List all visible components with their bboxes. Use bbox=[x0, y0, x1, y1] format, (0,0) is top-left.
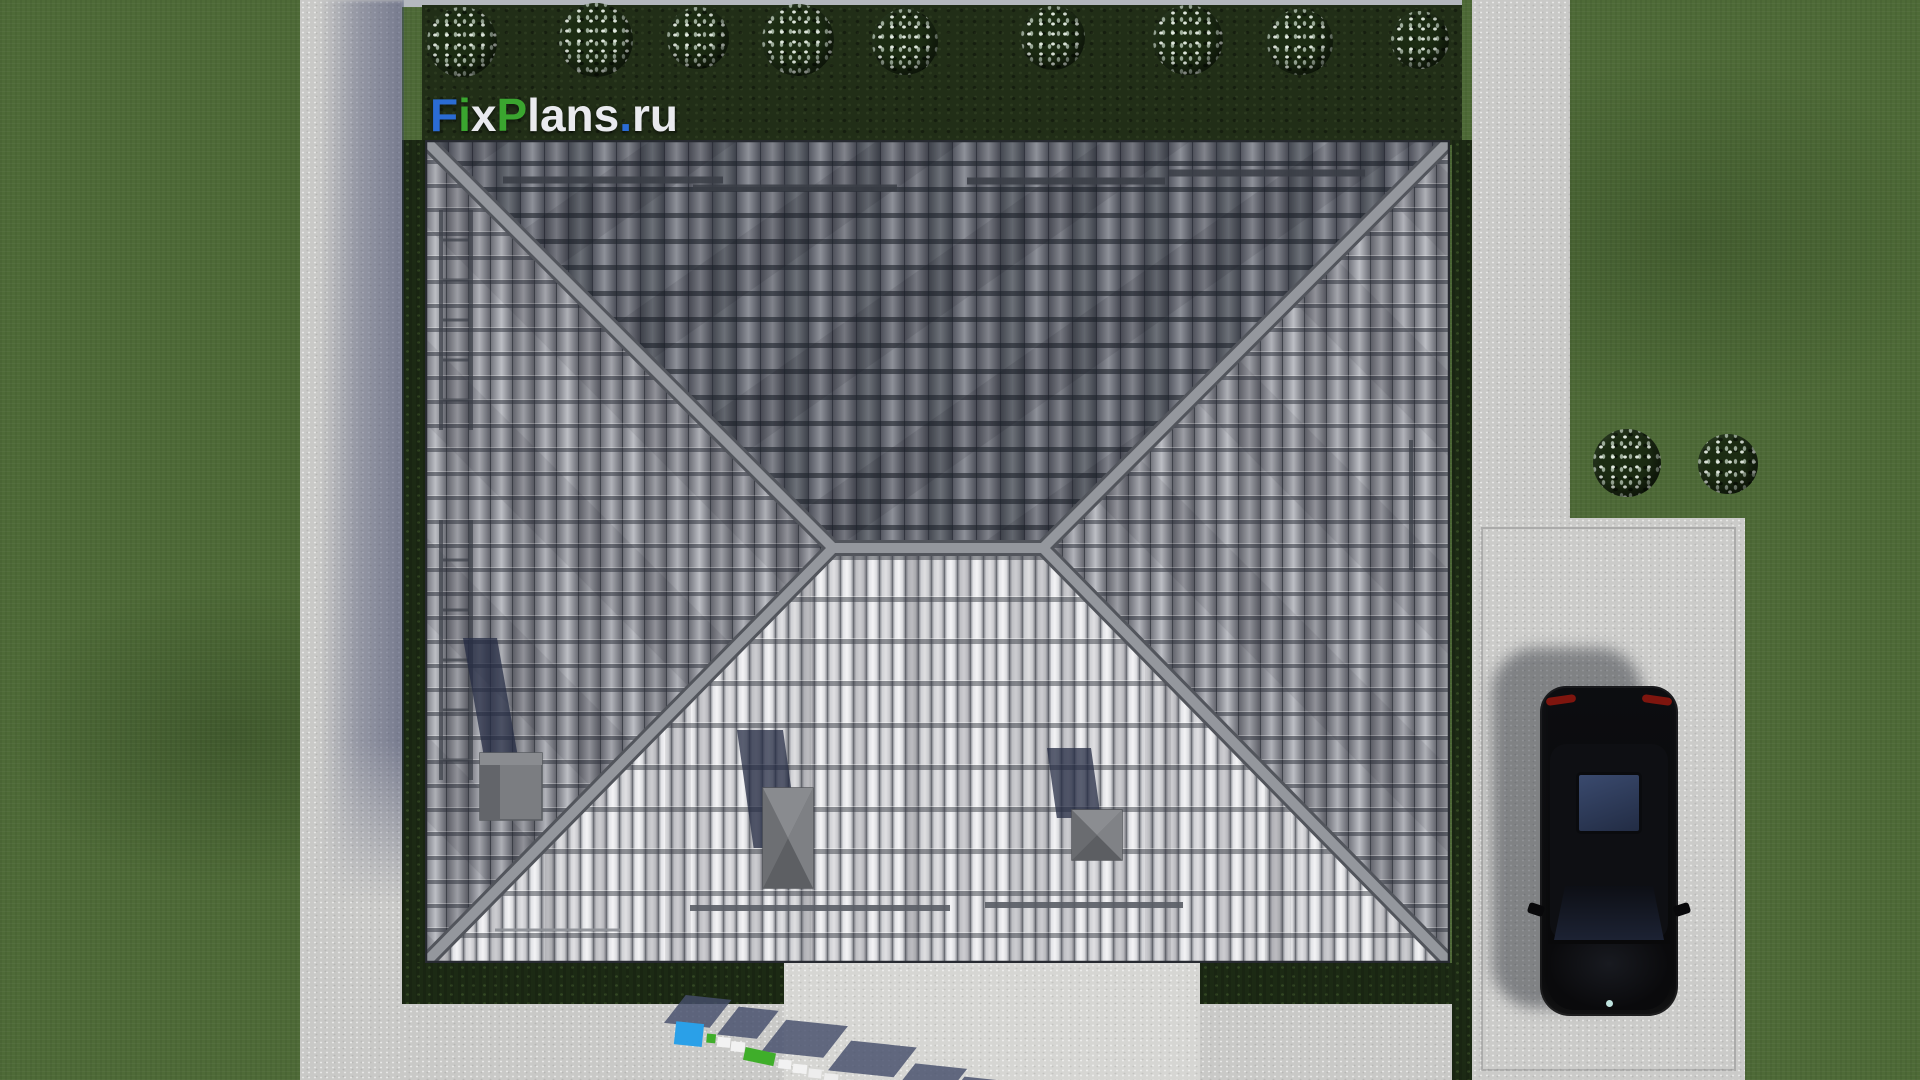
watermark-cap-white bbox=[730, 1041, 745, 1052]
watermark-letter-shadow bbox=[762, 1020, 848, 1058]
watermark-cap-green-dot bbox=[706, 1033, 716, 1043]
flower-shrub bbox=[1021, 6, 1085, 70]
grass-bed-bottom-right bbox=[1200, 963, 1452, 1004]
watermark-letter-shadow bbox=[717, 1007, 779, 1039]
watermark-cap-white bbox=[717, 1037, 731, 1048]
logo-segment: x bbox=[471, 89, 497, 141]
watermark-cap-white bbox=[793, 1064, 808, 1074]
flower-shrub bbox=[1267, 9, 1333, 75]
flower-shrub bbox=[1391, 11, 1449, 69]
logo-segment: P bbox=[496, 89, 527, 141]
flower-shrub bbox=[427, 7, 497, 77]
right-path bbox=[1472, 0, 1570, 518]
logo-segment: lans bbox=[527, 89, 619, 141]
fixplans-logo: FixPlans.ru bbox=[430, 92, 678, 138]
logo-segment: i bbox=[458, 89, 471, 141]
flower-shrub bbox=[667, 7, 729, 69]
car-emblem-dot bbox=[1606, 1000, 1613, 1007]
watermark-cap-white bbox=[778, 1059, 792, 1069]
flower-shrub bbox=[872, 9, 938, 75]
aerial-render-scene: FixPlans.ru bbox=[0, 0, 1920, 1080]
watermark-letter-shadow bbox=[897, 1063, 968, 1080]
chimney-1 bbox=[480, 753, 542, 820]
grass-bed-left bbox=[402, 140, 426, 963]
chimney-2 bbox=[763, 788, 813, 888]
watermark-cap-blue bbox=[674, 1021, 704, 1047]
watermark-cap-white bbox=[808, 1068, 822, 1078]
flower-shrub bbox=[762, 4, 834, 76]
logo-segment: ru bbox=[632, 89, 678, 141]
car-windshield bbox=[1554, 886, 1664, 940]
roof-render bbox=[425, 140, 1450, 963]
building-shadow bbox=[318, 0, 404, 905]
flower-shrub bbox=[1153, 5, 1223, 75]
flower-bush bbox=[1698, 434, 1758, 494]
chimney-3 bbox=[1072, 810, 1122, 860]
parked-car bbox=[1540, 686, 1678, 1016]
logo-segment: F bbox=[430, 89, 458, 141]
watermark-letter-shadow bbox=[828, 1041, 917, 1078]
grass-bed-right bbox=[1452, 140, 1472, 1080]
flower-bush bbox=[1593, 429, 1661, 497]
car-sunroof bbox=[1576, 772, 1642, 834]
logo-segment: . bbox=[619, 89, 632, 141]
watermark-cap-white bbox=[824, 1073, 839, 1080]
flower-shrub bbox=[559, 3, 633, 77]
